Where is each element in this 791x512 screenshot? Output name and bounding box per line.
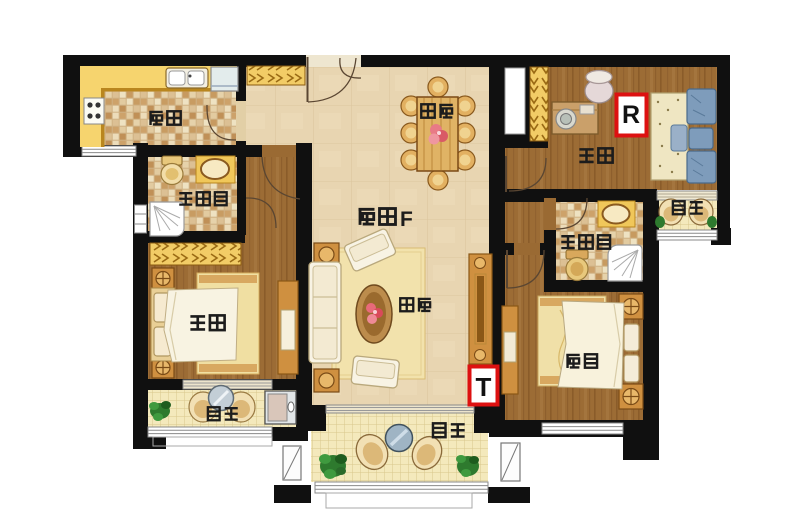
svg-text:T: T xyxy=(476,372,492,402)
svg-text:F: F xyxy=(400,208,413,231)
svg-text:R: R xyxy=(622,101,640,129)
